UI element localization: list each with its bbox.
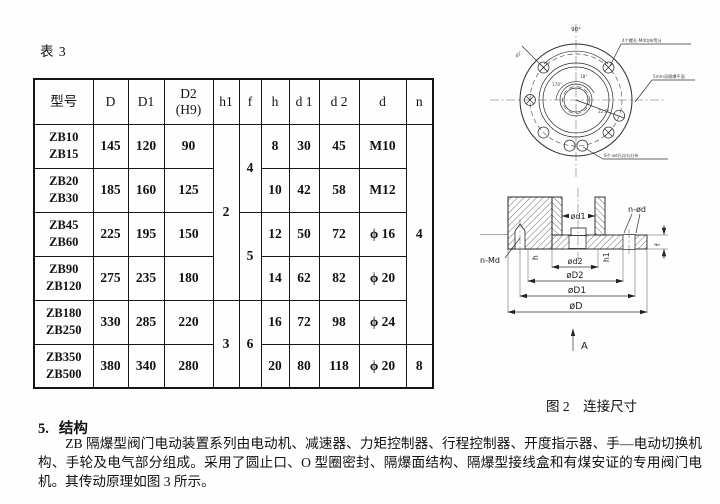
span-cell-f: 6 — [239, 300, 261, 388]
value-cell: 72 — [319, 212, 359, 256]
angle-label-45: 45° — [514, 50, 523, 59]
value-cell: 16 — [261, 300, 289, 344]
span-cell-n: 4 — [406, 124, 433, 344]
value-cell: 50 — [289, 212, 319, 256]
table-label: 表 3 — [40, 40, 67, 60]
view-arrow-label: A — [581, 341, 588, 352]
model-name: ZB350 — [35, 349, 93, 366]
table-header-row: 型号 D D1 D2 (H9) h1 f h d 1 d 2 d n — [34, 79, 433, 124]
value-cell: 30 — [289, 124, 319, 168]
model-name: ZB120 — [35, 278, 93, 295]
value-cell: 150 — [164, 212, 213, 256]
model-name: ZB30 — [35, 190, 93, 207]
header-f: f — [239, 79, 261, 124]
table-row: ZB180 ZB250 330 285 220 3 6 16 72 98 ϕ 2… — [34, 300, 433, 344]
callout-thread-holes: 4个螺孔-Md均布等分 — [622, 37, 663, 44]
dim-label-f: f — [654, 243, 662, 246]
dim-label-D2: øD2 — [566, 271, 583, 281]
callout-through-holes: 8个-ød孔均匀分布 — [604, 152, 639, 159]
value-cell: 330 — [93, 300, 128, 344]
model-cell: ZB90 ZB120 — [34, 256, 93, 300]
section-paragraph: ZB 隔爆型阀门电动装置系列由电动机、减速器、力矩控制器、行程控制器、开度指示器… — [38, 434, 702, 491]
model-cell: ZB180 ZB250 — [34, 300, 93, 344]
value-cell: 45 — [319, 124, 359, 168]
flange-top-view-drawing: 90° 170° 18° 22.5° 45° 4个螺孔-Md均布等分 5mm深隔… — [484, 16, 699, 184]
value-cell: 185 — [93, 168, 128, 212]
model-name: ZB15 — [35, 146, 93, 163]
model-name: ZB45 — [35, 217, 93, 234]
model-name: ZB90 — [35, 261, 93, 278]
value-cell: 8 — [261, 124, 289, 168]
value-cell: 145 — [93, 124, 128, 168]
dim-label-h: h — [531, 255, 540, 260]
value-cell: ϕ 24 — [359, 300, 406, 344]
dim-label-D: øD — [569, 301, 582, 312]
value-cell: 20 — [261, 344, 289, 388]
value-cell: 275 — [93, 256, 128, 300]
model-cell: ZB45 ZB60 — [34, 212, 93, 256]
header-D2-line1: D2 — [165, 86, 213, 102]
model-name: ZB500 — [35, 366, 93, 383]
value-cell: 220 — [164, 300, 213, 344]
header-d2: d 2 — [319, 79, 359, 124]
value-cell: 180 — [164, 256, 213, 300]
flange-section-drawing: ød1 n-ød n-Md h h1 f ød2 øD2 øD1 øD A — [478, 186, 720, 358]
value-cell: 82 — [319, 256, 359, 300]
value-cell: 72 — [289, 300, 319, 344]
value-cell: 340 — [128, 344, 164, 388]
header-D1: D1 — [128, 79, 164, 124]
model-name: ZB180 — [35, 305, 93, 322]
value-cell: ϕ 20 — [359, 256, 406, 300]
header-D: D — [93, 79, 128, 124]
value-cell: 118 — [319, 344, 359, 388]
span-cell-n: 8 — [406, 344, 433, 388]
header-D2: D2 (H9) — [164, 79, 213, 124]
dim-label-h1: h1 — [602, 252, 611, 262]
header-h: h — [261, 79, 289, 124]
spec-table: 型号 D D1 D2 (H9) h1 f h d 1 d 2 d n ZB10 … — [33, 78, 434, 389]
value-cell: 380 — [93, 344, 128, 388]
model-name: ZB20 — [35, 173, 93, 190]
header-n: n — [406, 79, 433, 124]
value-cell: 42 — [289, 168, 319, 212]
span-cell-f: 4 — [239, 124, 261, 212]
dim-label-n-Md: n-Md — [480, 256, 500, 265]
value-cell: M10 — [359, 124, 406, 168]
header-h1: h1 — [213, 79, 239, 124]
dim-label-D1: øD1 — [568, 286, 586, 296]
value-cell: 120 — [128, 124, 164, 168]
model-cell: ZB350 ZB500 — [34, 344, 93, 388]
header-d1: d 1 — [289, 79, 319, 124]
callout-flameproof-face: 5mm深隔爆平面 — [653, 73, 685, 80]
value-cell: 58 — [319, 168, 359, 212]
value-cell: 80 — [289, 344, 319, 388]
value-cell: 14 — [261, 256, 289, 300]
value-cell: 280 — [164, 344, 213, 388]
value-cell: ϕ 16 — [359, 212, 406, 256]
value-cell: 10 — [261, 168, 289, 212]
model-name: ZB10 — [35, 129, 93, 146]
model-name: ZB250 — [35, 322, 93, 339]
dim-label-n-od: n-ød — [628, 205, 646, 214]
value-cell: 225 — [93, 212, 128, 256]
value-cell: 12 — [261, 212, 289, 256]
model-name: ZB60 — [35, 234, 93, 251]
value-cell: 285 — [128, 300, 164, 344]
angle-label-18: 18° — [580, 74, 587, 79]
span-cell-h1: 3 — [213, 300, 239, 388]
value-cell: 160 — [128, 168, 164, 212]
value-cell: ϕ 20 — [359, 344, 406, 388]
figure-caption: 图 2 连接尺寸 — [546, 395, 637, 415]
value-cell: 62 — [289, 256, 319, 300]
angle-label-22-5: 22.5° — [598, 109, 609, 114]
span-cell-f: 5 — [239, 212, 261, 300]
table-row: ZB10 ZB15 145 120 90 2 4 8 30 45 M10 4 — [34, 124, 433, 168]
value-cell: 98 — [319, 300, 359, 344]
value-cell: 235 — [128, 256, 164, 300]
value-cell: M12 — [359, 168, 406, 212]
span-cell-h1: 2 — [213, 124, 239, 300]
header-d: d — [359, 79, 406, 124]
dim-label-d1: ød1 — [570, 212, 585, 221]
angle-label-170: 170° — [552, 82, 562, 87]
angle-label-90: 90° — [571, 27, 581, 33]
value-cell: 195 — [128, 212, 164, 256]
value-cell: 125 — [164, 168, 213, 212]
dim-label-d2: ød2 — [567, 257, 582, 266]
model-cell: ZB10 ZB15 — [34, 124, 93, 168]
value-cell: 90 — [164, 124, 213, 168]
model-cell: ZB20 ZB30 — [34, 168, 93, 212]
header-D2-line2: (H9) — [165, 102, 213, 118]
header-model: 型号 — [34, 79, 93, 124]
document-page: 表 3 型号 D D1 D2 (H9) h1 f h d 1 d 2 d n — [0, 0, 720, 504]
